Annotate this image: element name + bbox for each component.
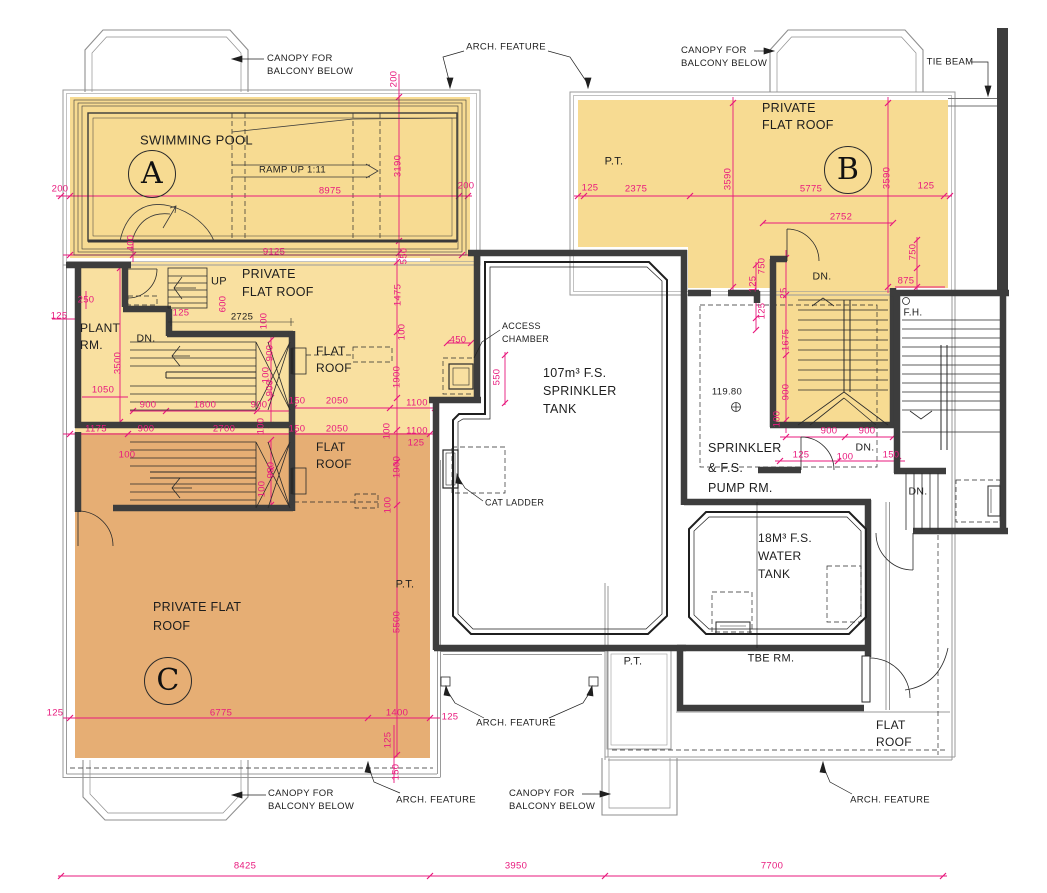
dn-room-door [876, 533, 913, 570]
floor-plan-drawing [0, 0, 1047, 893]
pump-room-door [801, 437, 834, 470]
structural-bar [997, 28, 1008, 294]
corridor-door-swing [905, 648, 948, 690]
level-marker-symbol [732, 403, 741, 412]
tie-beam [948, 28, 1008, 294]
fire-hydrant-symbol [903, 298, 910, 305]
tbe-door-leaf [862, 656, 870, 702]
floor-plan-page: CANOPY FOR BALCONY BELOWARCH. FEATURECAN… [0, 0, 1047, 893]
